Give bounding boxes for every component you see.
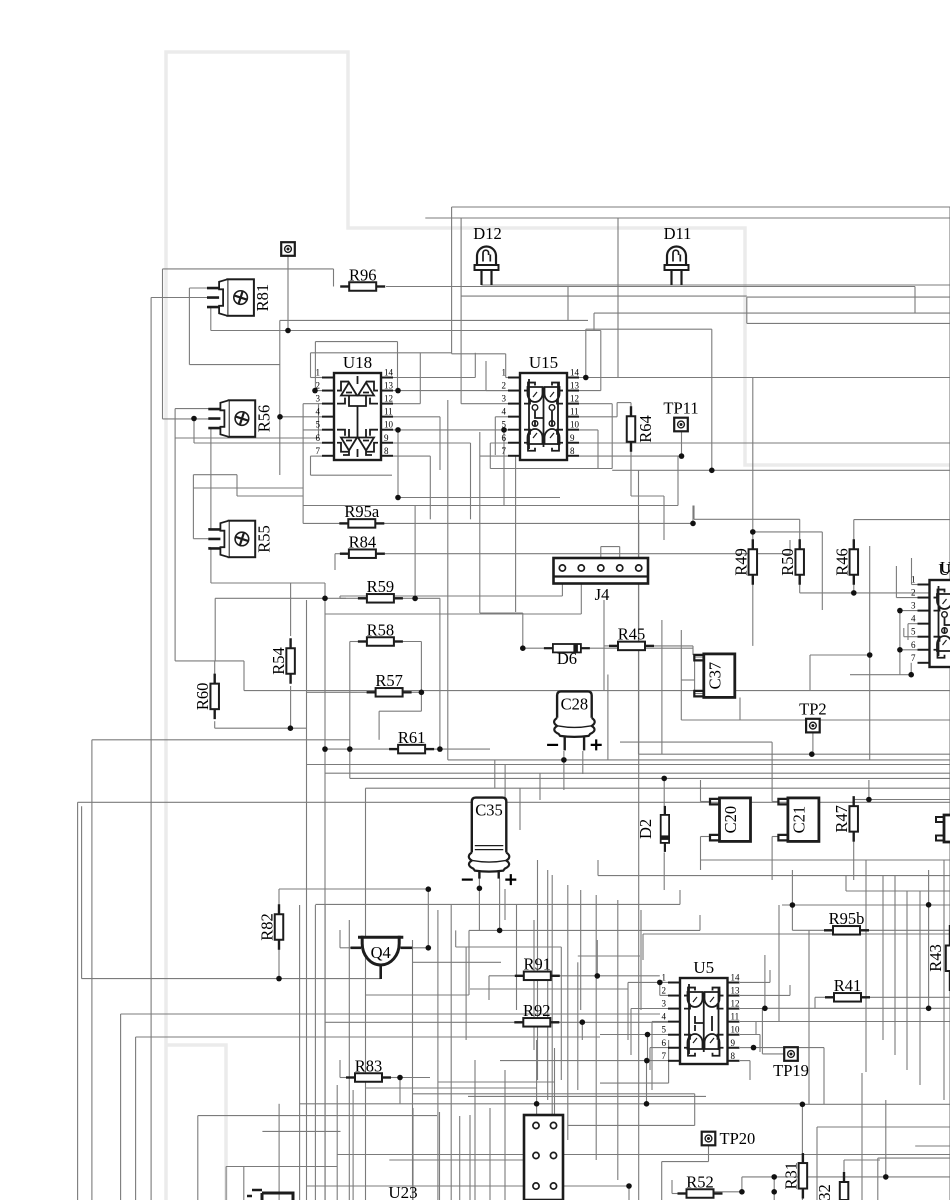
svg-text:12: 12 <box>384 394 393 404</box>
svg-text:11: 11 <box>570 407 579 417</box>
svg-text:R61: R61 <box>398 728 426 747</box>
svg-text:10: 10 <box>731 1025 741 1035</box>
svg-text:R57: R57 <box>375 671 403 690</box>
svg-text:3: 3 <box>316 394 321 404</box>
svg-text:D2: D2 <box>636 819 655 839</box>
svg-text:D6: D6 <box>557 649 577 668</box>
svg-text:7: 7 <box>662 1051 667 1061</box>
svg-text:10: 10 <box>384 420 394 430</box>
svg-text:R64: R64 <box>636 415 655 443</box>
svg-text:6: 6 <box>316 433 321 443</box>
svg-text:5: 5 <box>911 627 916 637</box>
svg-text:4: 4 <box>502 407 507 417</box>
svg-text:R95b: R95b <box>829 909 865 928</box>
svg-text:1: 1 <box>662 973 667 983</box>
svg-text:12: 12 <box>731 999 740 1009</box>
svg-text:2: 2 <box>316 381 321 391</box>
svg-text:R95a: R95a <box>344 502 380 521</box>
svg-text:3: 3 <box>502 394 507 404</box>
svg-text:7: 7 <box>316 446 321 456</box>
svg-text:R56: R56 <box>254 405 273 433</box>
svg-text:2: 2 <box>662 986 667 996</box>
svg-text:R31: R31 <box>781 1162 800 1190</box>
svg-text:U: U <box>940 558 950 577</box>
svg-text:14: 14 <box>731 973 741 983</box>
svg-text:TP11: TP11 <box>663 399 698 418</box>
svg-text:TP19: TP19 <box>773 1061 809 1080</box>
svg-text:R96: R96 <box>349 265 377 284</box>
svg-text:7: 7 <box>911 653 916 663</box>
svg-text:1: 1 <box>911 575 916 585</box>
svg-text:R43: R43 <box>926 944 945 972</box>
svg-text:C21: C21 <box>789 806 808 834</box>
svg-text:R82: R82 <box>258 913 277 941</box>
svg-text:J4: J4 <box>595 585 610 604</box>
svg-text:C28: C28 <box>561 694 589 713</box>
svg-text:R60: R60 <box>193 683 212 711</box>
svg-text:TP2: TP2 <box>799 700 827 719</box>
svg-text:9: 9 <box>731 1038 736 1048</box>
svg-text:4: 4 <box>316 407 321 417</box>
svg-text:U23: U23 <box>388 1183 417 1200</box>
svg-text:1: 1 <box>316 368 321 378</box>
svg-text:D11: D11 <box>664 224 692 243</box>
svg-text:R45: R45 <box>618 625 646 644</box>
svg-text:R81: R81 <box>253 284 272 312</box>
svg-text:R49: R49 <box>731 548 750 576</box>
svg-text:7: 7 <box>502 446 507 456</box>
svg-text:5: 5 <box>662 1025 667 1035</box>
svg-text:12: 12 <box>570 394 579 404</box>
svg-text:R91: R91 <box>524 955 552 974</box>
svg-text:14: 14 <box>570 368 580 378</box>
svg-text:R54: R54 <box>269 647 288 675</box>
svg-text:10: 10 <box>570 420 580 430</box>
svg-text:TP20: TP20 <box>720 1129 756 1148</box>
svg-text:6: 6 <box>911 640 916 650</box>
svg-text:6: 6 <box>662 1038 667 1048</box>
svg-text:1: 1 <box>502 368 507 378</box>
svg-text:Q4: Q4 <box>371 943 391 962</box>
svg-text:8: 8 <box>384 446 389 456</box>
svg-text:R84: R84 <box>349 533 377 552</box>
svg-text:2: 2 <box>502 381 507 391</box>
svg-text:11: 11 <box>384 407 393 417</box>
svg-text:9: 9 <box>384 433 389 443</box>
svg-text:4: 4 <box>662 1012 667 1022</box>
svg-text:4: 4 <box>911 614 916 624</box>
svg-text:R83: R83 <box>355 1056 383 1075</box>
svg-text:8: 8 <box>731 1051 736 1061</box>
svg-text:11: 11 <box>731 1012 740 1022</box>
svg-text:13: 13 <box>570 381 580 391</box>
svg-text:R32: R32 <box>815 1184 834 1200</box>
svg-text:U15: U15 <box>529 353 558 372</box>
svg-text:U5: U5 <box>693 958 714 977</box>
svg-text:13: 13 <box>384 381 394 391</box>
svg-text:R52: R52 <box>686 1172 714 1191</box>
svg-text:C35: C35 <box>475 801 503 820</box>
svg-text:9: 9 <box>570 433 575 443</box>
svg-text:14: 14 <box>384 368 394 378</box>
svg-text:R92: R92 <box>523 1001 551 1020</box>
svg-text:C20: C20 <box>721 806 740 834</box>
svg-text:8: 8 <box>570 446 575 456</box>
svg-text:R41: R41 <box>834 976 862 995</box>
svg-text:6: 6 <box>502 433 507 443</box>
svg-text:5: 5 <box>316 420 321 430</box>
svg-text:R58: R58 <box>367 620 395 639</box>
svg-text:R55: R55 <box>254 525 273 553</box>
svg-text:3: 3 <box>662 999 667 1009</box>
svg-text:U18: U18 <box>343 353 372 372</box>
svg-text:2: 2 <box>911 588 916 598</box>
svg-text:R50: R50 <box>778 548 797 576</box>
svg-text:R47: R47 <box>832 805 851 833</box>
svg-text:C37: C37 <box>705 662 724 690</box>
svg-text:R59: R59 <box>367 577 395 596</box>
svg-text:13: 13 <box>731 986 741 996</box>
svg-text:R46: R46 <box>832 548 851 576</box>
svg-text:5: 5 <box>502 420 507 430</box>
svg-text:D12: D12 <box>473 224 501 243</box>
svg-text:3: 3 <box>911 601 916 611</box>
